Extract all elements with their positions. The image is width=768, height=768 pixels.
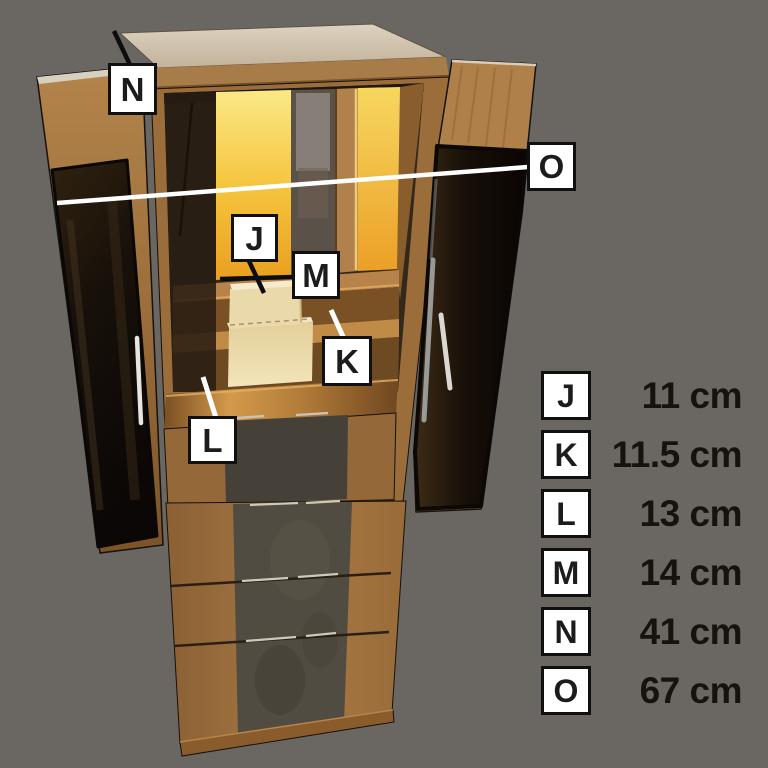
legend-box-l: L (541, 489, 591, 538)
measurement-diagram-page: { "colors": { "background": "#6a6662", "… (0, 0, 768, 768)
legend-value-k: 11.5 cm (591, 434, 742, 476)
legend-box-k: K (541, 430, 591, 479)
legend-value-l: 13 cm (591, 493, 742, 535)
legend-value-j: 11 cm (591, 375, 742, 417)
legend-box-m: M (541, 548, 591, 597)
legend-row-m: M 14 cm (541, 548, 742, 597)
right-door-dark-panel (415, 146, 527, 509)
callout-k: K (322, 336, 372, 386)
legend-value-n: 41 cm (591, 611, 742, 653)
callout-l: L (188, 416, 237, 464)
legend-row-l: L 13 cm (541, 489, 742, 538)
callout-n: N (108, 63, 157, 115)
legend-row-k: K 11.5 cm (541, 430, 742, 479)
measurement-legend: J 11 cm K 11.5 cm L 13 cm M 14 cm N 41 c… (541, 371, 742, 725)
callout-m: M (292, 251, 340, 299)
upper-drawer-panel (224, 415, 348, 505)
legend-value-m: 14 cm (591, 552, 742, 594)
legend-row-n: N 41 cm (541, 607, 742, 656)
legend-row-o: O 67 cm (541, 666, 742, 715)
cabinet-interior (164, 83, 424, 392)
legend-box-j: J (541, 371, 591, 420)
legend-row-j: J 11 cm (541, 371, 742, 420)
legend-value-o: 67 cm (591, 670, 742, 712)
legend-box-o: O (541, 666, 591, 715)
lower-chest (166, 501, 406, 756)
callout-o: O (527, 142, 576, 191)
left-door (37, 66, 163, 553)
callout-j: J (231, 214, 278, 262)
legend-box-n: N (541, 607, 591, 656)
